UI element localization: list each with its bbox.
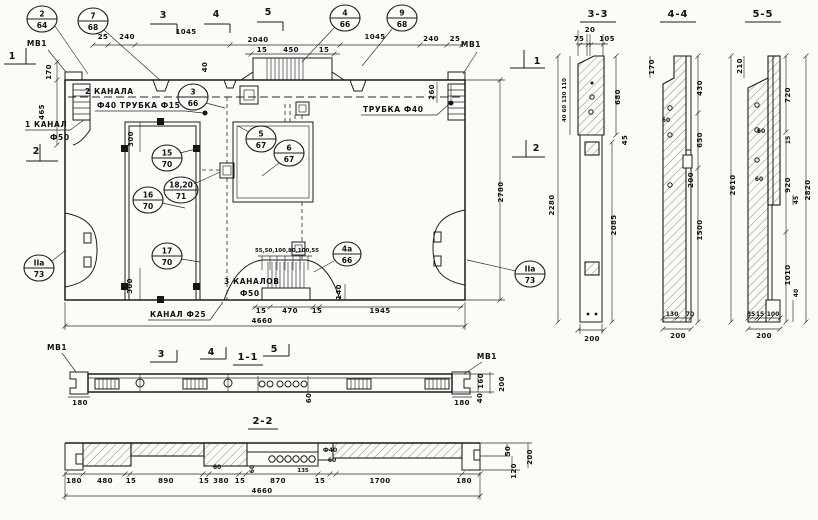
dim-1045-r: 1045 (364, 33, 385, 41)
dim-15d: 15 (312, 307, 323, 315)
svg-text:67: 67 (256, 141, 266, 150)
dim-170: 170 (45, 64, 53, 80)
callout-3-66: 3 66 (178, 84, 208, 110)
dim-2780: 2780 (497, 181, 505, 202)
svg-text:66: 66 (342, 256, 352, 265)
dim-1945: 1945 (369, 307, 390, 315)
dim-44-4: 200 (687, 172, 695, 188)
dim-55-8: 40 (793, 289, 800, 297)
callout-IIa-73-right: IIа 73 (515, 261, 545, 287)
dim-22-12: 1700 (369, 477, 390, 485)
dim-55-4: 920 (784, 177, 792, 193)
dim-55-10: 85 (747, 311, 755, 318)
dim-55-3: 60 (757, 128, 765, 135)
dim-140: 140 (335, 284, 343, 300)
mv1-top-left: МВ1 (27, 39, 47, 48)
dim-55-1: 720 (784, 87, 792, 103)
dim-55-5: 60 (755, 176, 763, 183)
dim-22-11: 15 (315, 477, 326, 485)
dim-22-4: 15 (199, 477, 210, 485)
dim-300-bot: 300 (126, 278, 134, 294)
section-4-4: 4-4 170 430 60 650 200 1500 2610 130 70 … (648, 9, 737, 340)
drawing-svg: 25 240 1045 2040 15 450 15 40 1045 240 2… (0, 0, 818, 520)
dim-22-19: 4660 (251, 487, 272, 495)
square-opening (233, 122, 313, 202)
dim-40-rot: 40 (201, 62, 209, 73)
mark-5-top: 5 (265, 7, 272, 18)
note-three-channels: 3 КАНАЛОВ (224, 277, 280, 286)
dim-33-2: 105 (599, 35, 615, 43)
dim-44-0: 170 (648, 59, 656, 75)
note-one-channel: 1 КАНАЛ (25, 120, 67, 129)
dim-2040: 2040 (247, 36, 268, 44)
dim-33-7: 2085 (610, 214, 618, 235)
callout-9-68: 9 68 (387, 5, 417, 31)
svg-text:73: 73 (525, 276, 535, 285)
note-three-channels-d: Ф50 (240, 289, 260, 298)
callout-6-67: 6 67 (274, 140, 304, 166)
svg-text:64: 64 (37, 21, 47, 30)
dim-channel-row: 55,50,100,80,100,55 (255, 248, 319, 254)
dim-44-5: 1500 (696, 219, 704, 240)
note-tube-row: Ф40 ТРУБКА Ф15 (97, 101, 180, 110)
svg-text:70: 70 (162, 160, 172, 169)
dim-22-10: 135 (297, 468, 309, 474)
callout-1820-71: 18,20 71 (164, 177, 198, 203)
dim-22-1: 480 (97, 477, 113, 485)
dim-55-13: 200 (756, 332, 772, 340)
dim-60-11: 60 (305, 393, 313, 404)
title-2-2: 2-2 (252, 416, 273, 427)
panel-working-drawing: 25 240 1045 2040 15 450 15 40 1045 240 2… (0, 0, 818, 520)
callout-17-70: 17 70 (152, 243, 182, 269)
dim-33-3: 40 60 130 110 (562, 78, 568, 122)
dim-240-l: 240 (119, 33, 135, 41)
dim-22-14: Ф40 (323, 447, 337, 454)
svg-text:7: 7 (90, 12, 95, 21)
dim-44-9: 200 (670, 332, 686, 340)
dim-25-l: 25 (98, 33, 109, 41)
dim-22-15: 60 (328, 457, 336, 464)
dim-240-r: 240 (423, 35, 439, 43)
dim-33-1: 20 (585, 26, 596, 34)
dim-15b: 15 (319, 46, 330, 54)
section-5-5: 5-5 210 720 15 60 920 60 45 1010 40 2820… (736, 9, 812, 340)
svg-text:4: 4 (342, 9, 347, 18)
dim-22-18: 120 (510, 463, 518, 479)
mark-4-top: 4 (213, 9, 220, 20)
dim-22-13: 180 (456, 477, 472, 485)
dim-22-2: 15 (126, 477, 137, 485)
svg-text:2: 2 (39, 10, 44, 19)
callout-4a-66: 4а 66 (333, 242, 361, 266)
mark-4-bot: 4 (208, 347, 215, 358)
dim-22-8: 60 (249, 465, 256, 473)
dim-1045-l: 1045 (175, 28, 196, 36)
top-ribbed-block (253, 58, 332, 80)
dim-22-17: 200 (526, 449, 534, 465)
dim-465: 465 (38, 104, 46, 120)
dim-40-11: 40 (476, 393, 484, 404)
title-4-4: 4-4 (667, 9, 688, 20)
dim-55-6: 45 (793, 196, 800, 204)
callout-15-70: 15 70 (152, 145, 182, 171)
section-2-2: 2-2 180 480 15 890 15 60 380 15 60 870 1… (63, 416, 535, 500)
dim-22-0: 180 (66, 477, 82, 485)
dim-300-top: 300 (127, 131, 135, 147)
dim-260: 260 (428, 84, 436, 100)
channel-holes-2-2 (269, 456, 315, 462)
callout-2-64: 2 64 (27, 6, 57, 32)
dim-44-8: 70 (686, 311, 694, 318)
dim-22-5: 60 (213, 464, 221, 471)
dim-55-0: 210 (736, 58, 744, 74)
svg-text:70: 70 (143, 202, 153, 211)
svg-text:70: 70 (162, 258, 172, 267)
svg-text:15: 15 (162, 149, 172, 158)
shear-keys (95, 379, 449, 389)
mark-5-bot: 5 (271, 344, 278, 355)
dim-55-9: 2820 (804, 179, 812, 200)
section-marks: 3 4 5 1 1 2 2 3 4 5 (4, 7, 545, 362)
dim-33-8: 200 (584, 335, 600, 343)
dim-22-16: 50 (504, 446, 512, 457)
dim-450: 450 (283, 46, 299, 54)
dim-55-7: 1010 (784, 264, 792, 285)
dim-55-11: 15 (756, 311, 764, 318)
svg-text:66: 66 (188, 99, 198, 108)
svg-text:6: 6 (286, 144, 291, 153)
dim-44-7: 130 (666, 311, 679, 318)
dim-470: 470 (282, 307, 298, 315)
section-3-3: 3-3 75 20 105 40 60 130 110 680 45 2280 … (548, 9, 629, 343)
mark-2-left: 2 (33, 146, 40, 157)
dim-22-6: 380 (213, 477, 229, 485)
svg-text:68: 68 (397, 20, 407, 29)
dim-44-2: 60 (662, 117, 670, 124)
mark-3-top: 3 (160, 10, 167, 21)
svg-text:18,20: 18,20 (169, 181, 193, 190)
dim-33-6: 2280 (548, 194, 556, 215)
dim-160-11: 160 (477, 373, 485, 389)
note-two-channels: 2 КАНАЛА (85, 87, 134, 96)
callout-5-67: 5 67 (246, 126, 276, 152)
dim-33-5: 45 (621, 135, 629, 146)
dim-22-3: 890 (158, 477, 174, 485)
title-5-5: 5-5 (752, 9, 773, 20)
dim-44-1: 430 (696, 80, 704, 96)
svg-text:17: 17 (162, 247, 172, 256)
svg-text:IIа: IIа (525, 265, 536, 274)
panel-front-view: 25 240 1045 2040 15 450 15 40 1045 240 2… (25, 28, 505, 330)
dim-44-6: 2610 (729, 174, 737, 195)
dim-200-11: 200 (498, 376, 506, 392)
callout-4-66: 4 66 (330, 5, 360, 31)
svg-text:67: 67 (284, 155, 294, 164)
callout-7-68: 7 68 (78, 8, 108, 34)
dim-55-12: 100 (767, 311, 780, 318)
title-3-3: 3-3 (587, 9, 608, 20)
svg-text:16: 16 (143, 191, 153, 200)
note-channel25: КАНАЛ Ф25 (150, 310, 206, 319)
mark-1-right: 1 (534, 56, 541, 67)
mark-1-left: 1 (9, 51, 16, 62)
dim-15a: 15 (257, 46, 268, 54)
dim-180-11l: 180 (72, 399, 88, 407)
title-1-1: 1-1 (237, 352, 258, 363)
note-tube40: ТРУБКА Ф40 (363, 105, 424, 114)
mv1-11-right: МВ1 (477, 352, 497, 361)
svg-text:3: 3 (190, 88, 195, 97)
dim-180-11r: 180 (454, 399, 470, 407)
dim-4660: 4660 (251, 317, 272, 325)
svg-text:IIа: IIа (34, 259, 45, 268)
svg-text:68: 68 (88, 23, 98, 32)
dim-22-9: 870 (270, 477, 286, 485)
mark-3-bot: 3 (158, 349, 165, 360)
svg-text:5: 5 (258, 130, 263, 139)
dim-33-4: 680 (614, 89, 622, 105)
svg-text:73: 73 (34, 270, 44, 279)
callout-IIa-73-left: IIа 73 (24, 255, 54, 281)
svg-text:66: 66 (340, 20, 350, 29)
svg-text:71: 71 (176, 192, 186, 201)
dim-55-2: 15 (785, 136, 792, 144)
dim-44-3: 650 (696, 132, 704, 148)
mark-2-right: 2 (533, 143, 540, 154)
dim-lines-top (91, 43, 465, 57)
dim-15c: 15 (256, 307, 267, 315)
mv1-top-right: МВ1 (461, 40, 481, 49)
svg-text:4а: 4а (342, 245, 352, 254)
mv1-11-left: МВ1 (47, 343, 67, 352)
svg-text:9: 9 (399, 9, 404, 18)
note-one-channel-d: Ф50 (50, 133, 70, 142)
dim-25-r: 25 (450, 35, 461, 43)
callout-16-70: 16 70 (133, 187, 163, 213)
channel-holes-1-1 (136, 374, 308, 392)
dim-22-7: 15 (235, 477, 246, 485)
dim-33-0: 75 (574, 35, 585, 43)
